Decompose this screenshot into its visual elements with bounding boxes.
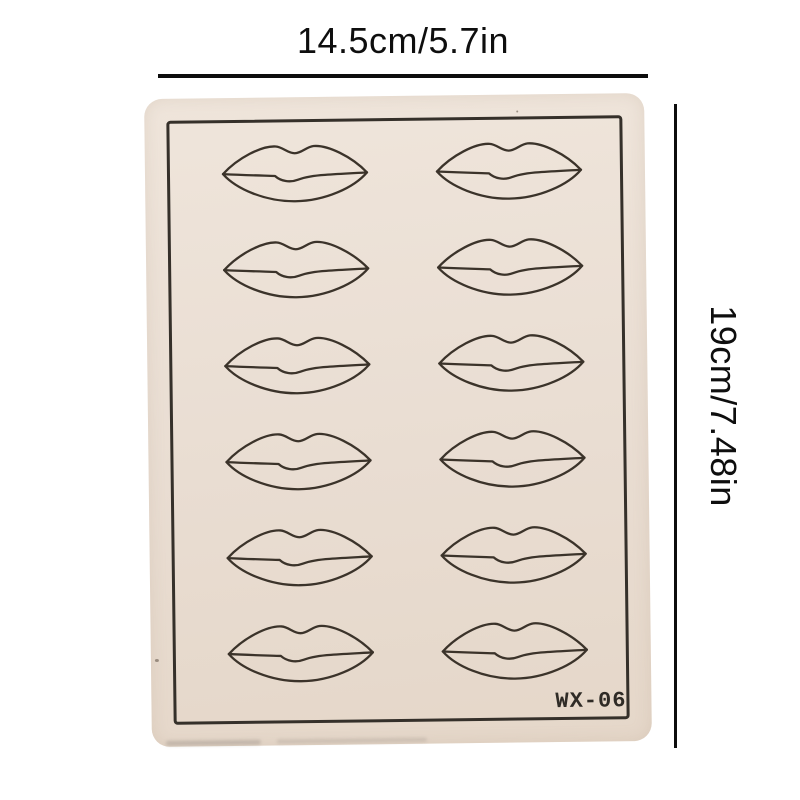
wear-speck <box>155 659 159 662</box>
lip-outline <box>222 332 373 398</box>
lip-outline <box>434 138 585 204</box>
lip-outline <box>439 618 590 684</box>
practice-skin-pad: WX-06 <box>144 93 652 747</box>
height-dimension-label: 19cm/7.48in <box>702 305 744 507</box>
lip-outline <box>438 522 589 588</box>
wear-smudge <box>166 740 261 746</box>
model-number-label: WX-06 <box>555 688 626 714</box>
lip-outline <box>224 524 375 590</box>
width-dimension-label: 14.5cm/5.7in <box>158 22 648 60</box>
width-dimension-line <box>158 74 648 78</box>
lip-grid <box>220 138 591 686</box>
lip-outline <box>220 140 371 206</box>
lip-outline <box>436 330 587 396</box>
wear-smudge <box>277 738 427 744</box>
lip-outline <box>223 428 374 494</box>
lip-outline <box>435 234 586 300</box>
lip-outline <box>437 426 588 492</box>
lip-outline <box>221 236 372 302</box>
height-dimension-line <box>674 104 677 748</box>
product-image: 14.5cm/5.7in 19cm/7.48in <box>0 0 800 800</box>
lip-outline <box>225 620 376 686</box>
wear-speck <box>516 111 518 113</box>
